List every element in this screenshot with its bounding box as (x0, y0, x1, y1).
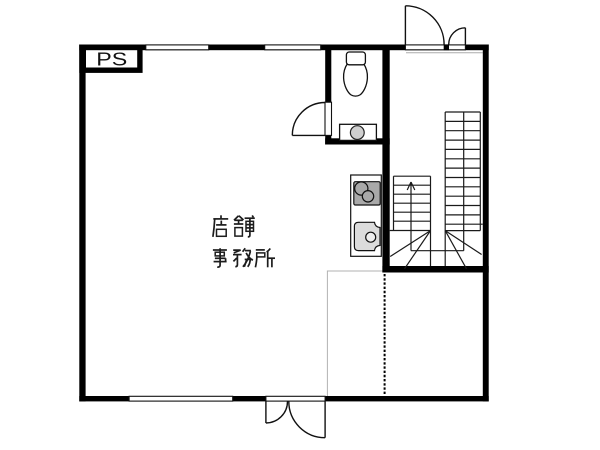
svg-text:PS: PS (96, 48, 127, 69)
